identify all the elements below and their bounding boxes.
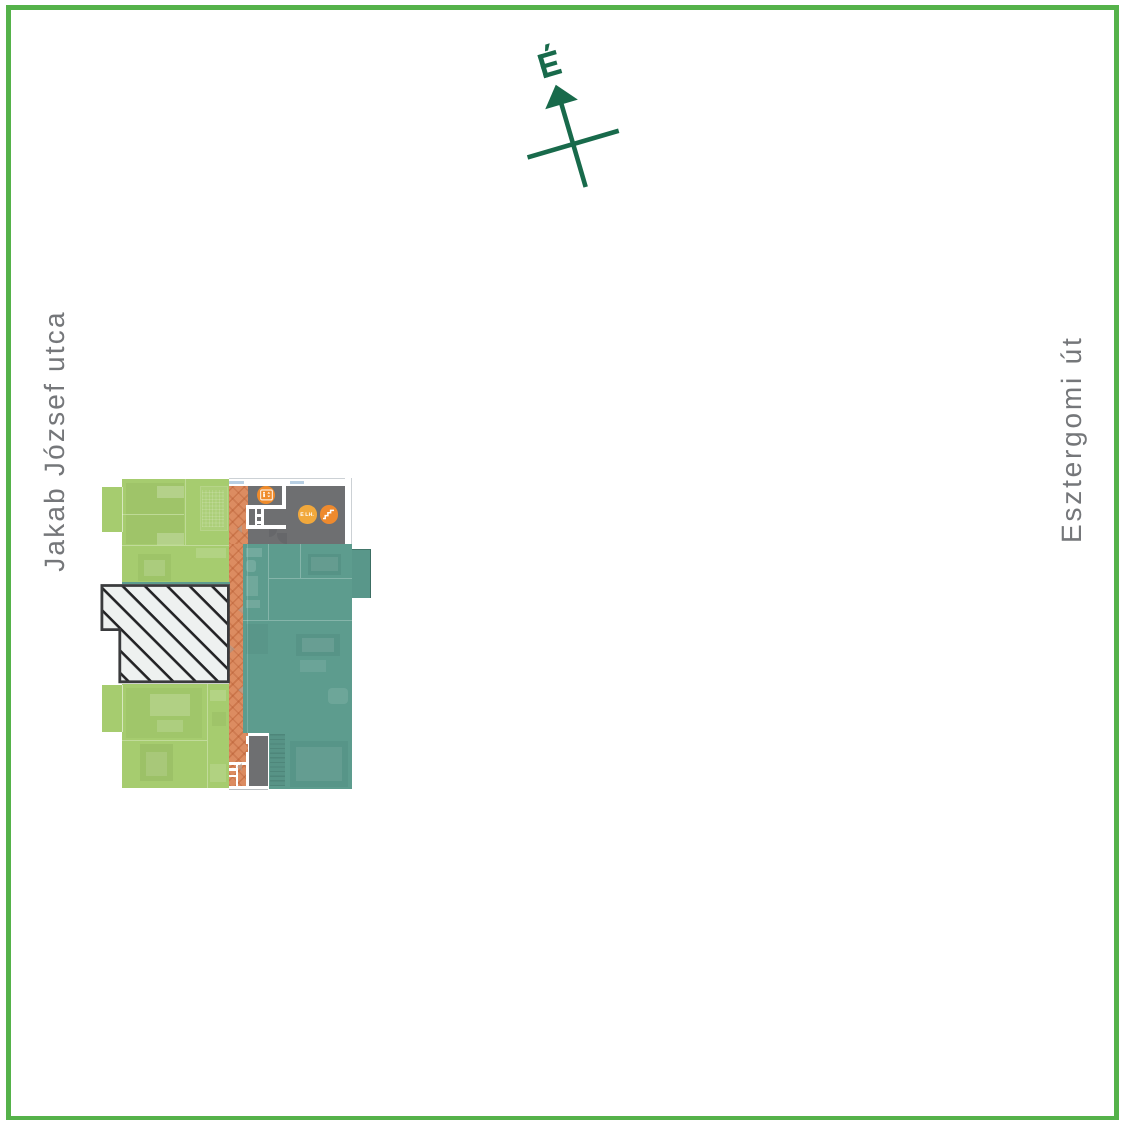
svg-text:E LH.: E LH. — [301, 513, 315, 519]
